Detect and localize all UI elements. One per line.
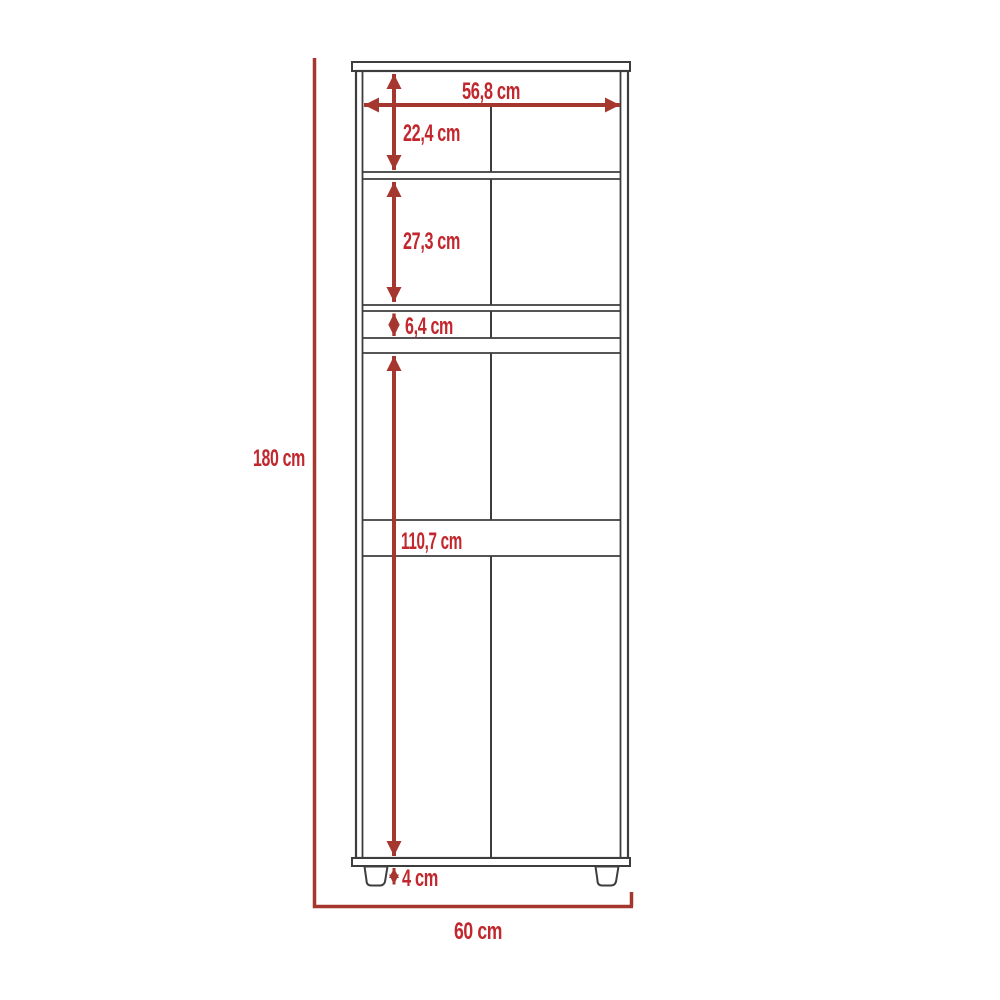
dim-lower-section-label: 110,7 cm [401, 528, 462, 555]
cabinet-foot-right [596, 867, 619, 886]
dim-drawer-section-label: 6,4 cm [405, 313, 453, 340]
dim-feet-label: 4 cm [402, 865, 438, 892]
dim-total-width-label: 60 cm [454, 918, 502, 945]
furniture-dimension-diagram: 56,8 cm 22,4 cm 27,3 cm 6,4 cm 110,7 cm … [0, 0, 1000, 1000]
dim-interior-width-label: 56,8 cm [462, 78, 520, 105]
dim-total-height-label: 180 cm [253, 445, 305, 472]
cabinet-top-panel [352, 62, 630, 71]
cabinet-foot-left [365, 867, 388, 886]
dim-top-section-label: 22,4 cm [403, 120, 460, 147]
dim-second-section-label: 27,3 cm [403, 228, 460, 255]
cabinet-dimension-drawing: 56,8 cm 22,4 cm 27,3 cm 6,4 cm 110,7 cm … [0, 0, 1000, 1000]
cabinet-bottom-panel [352, 858, 630, 866]
